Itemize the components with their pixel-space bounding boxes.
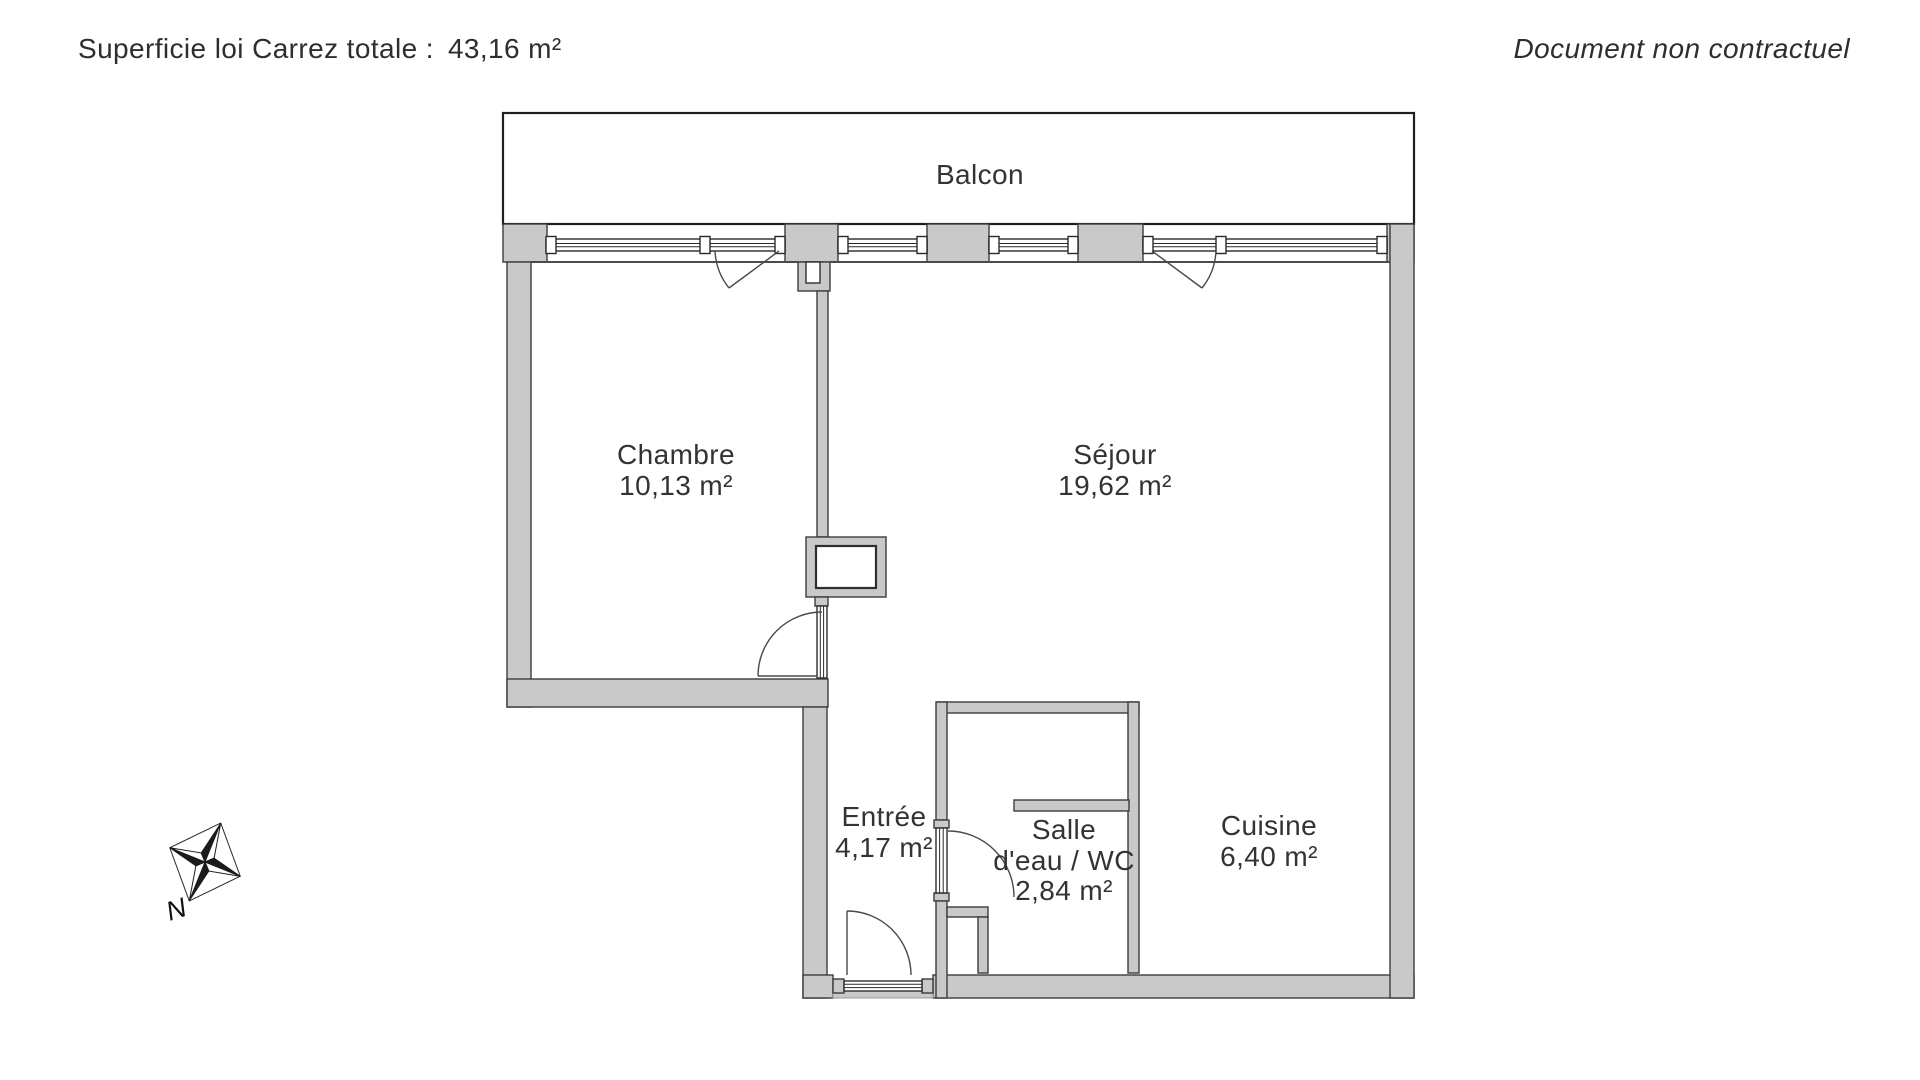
sde-door-cap-lower [934, 893, 949, 901]
chambre-door [758, 606, 827, 678]
window-2 [838, 237, 927, 254]
chambre-name: Chambre [617, 439, 735, 470]
sde-top-wall [937, 702, 1139, 713]
cuisine-area: 6,40 m² [1220, 841, 1318, 872]
balcony-label: Balcon [936, 159, 1024, 190]
wall-under-entry-door [833, 991, 933, 998]
wall-right [1390, 224, 1414, 998]
chambre-door-cap [815, 597, 828, 606]
wall-bottom-left [803, 975, 833, 998]
chambre-area: 10,13 m² [619, 470, 733, 501]
sde-door-cap-upper [934, 820, 949, 828]
compass-north-label: N [162, 892, 190, 927]
balcony-door-right [1152, 251, 1216, 288]
wall-chambre-bottom [507, 679, 828, 707]
window-4 [1143, 237, 1387, 254]
duct-notch [806, 262, 820, 283]
floor-plan-drawing: Balcon [0, 0, 1920, 1080]
wall-bottom-right [933, 975, 1414, 998]
sde-left-wall-upper [936, 702, 947, 820]
cuisine-name: Cuisine [1221, 810, 1317, 841]
entrance-door [833, 911, 933, 993]
sejour-area: 19,62 m² [1058, 470, 1172, 501]
entry-cap-left [833, 979, 844, 993]
closet-stub-wall [947, 907, 988, 917]
wall-entree-left [803, 707, 827, 998]
sde-left-wall-lower [936, 901, 947, 998]
wall-left [507, 262, 531, 707]
partition-wall [817, 291, 828, 537]
salle-eau-area: 2,84 m² [1015, 875, 1113, 906]
sde-interior-stub [1014, 800, 1129, 811]
wall-pillar-b [927, 224, 989, 262]
entree-area: 4,17 m² [835, 832, 933, 863]
wall-pillar-a [785, 224, 838, 262]
sejour-name: Séjour [1073, 439, 1156, 470]
balcony-door-left [715, 251, 779, 288]
duct-box-inner [816, 546, 876, 588]
entree-name: Entrée [842, 801, 927, 832]
wall-pillar-c [1078, 224, 1143, 262]
closet-right-wall [978, 917, 988, 973]
exterior-walls [503, 224, 1414, 998]
window-3 [989, 237, 1078, 254]
entry-cap-right [922, 979, 933, 993]
salle-eau-name-line1: Salle [1032, 814, 1096, 845]
room-labels: Chambre 10,13 m² Séjour 19,62 m² Entrée … [617, 439, 1318, 906]
sde-right-wall [1128, 702, 1139, 973]
floor-plan-page: Superficie loi Carrez totale :43,16 m² D… [0, 0, 1920, 1080]
wall-corner-left [503, 224, 547, 262]
balcony: Balcon [503, 113, 1414, 224]
salle-eau-name-line2: d'eau / WC [993, 845, 1135, 876]
window-1 [546, 237, 785, 254]
partition-chambre-sejour [758, 262, 886, 678]
